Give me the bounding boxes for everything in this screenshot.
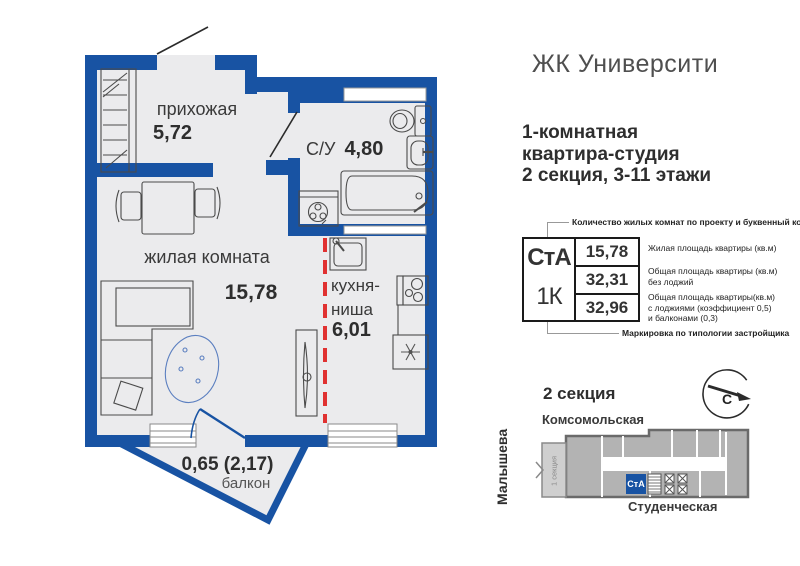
section-title: 2 секция	[543, 384, 615, 404]
area-value-total: 32,96	[576, 293, 638, 320]
kitchen-area: 6,01	[332, 319, 371, 342]
section-1-label: 1 секция	[546, 447, 562, 495]
stairs-icon	[648, 474, 661, 494]
bathroom-area: 4,80	[344, 138, 383, 161]
page-title: ЖК Университи	[480, 50, 770, 79]
floor-plan-page: прихожая 5,72 С/У 4,80 жилая комната 15,…	[0, 0, 800, 566]
rooms-code: 1К	[524, 281, 574, 313]
vent-niche-top	[344, 88, 426, 101]
table-top-annotation: Количество жилых комнат по проекту и бук…	[572, 217, 800, 228]
window-right	[328, 424, 397, 447]
leader-top-h	[547, 222, 569, 223]
hallway-area: 5,72	[130, 122, 215, 145]
row-label-total: Общая площадь квартиры(кв.м) с лоджиями …	[648, 292, 793, 324]
living-room-area: 15,78	[206, 281, 296, 305]
unit-marker-label: СтА	[626, 474, 646, 494]
area-value-no-loggia: 32,31	[576, 265, 638, 293]
apartment-subtitle: 1-комнатная квартира-студия 2 секция, 3-…	[522, 122, 762, 187]
compass-north-label: С	[719, 391, 735, 407]
street-left-label: Малышева	[491, 423, 513, 511]
row-label-living: Жилая площадь квартиры (кв.м)	[648, 243, 776, 254]
balcony-area: 0,65 (2,17)	[165, 454, 290, 476]
bathroom-label-row: С/У 4,80	[306, 138, 383, 161]
balcony-door-threshold	[196, 435, 245, 447]
living-room-label: жилая комната	[127, 247, 287, 268]
window-left	[150, 424, 196, 447]
leader-bottom-h	[547, 333, 619, 334]
area-value-living: 15,78	[576, 239, 638, 265]
kitchen-label: кухня- ниша	[331, 274, 380, 322]
vent-niche-bottom	[344, 226, 426, 234]
table-bottom-annotation: Маркировка по типологии застройщика	[622, 328, 789, 339]
street-top-label: Комсомольская	[542, 412, 644, 427]
bathroom-label: С/У	[306, 139, 335, 160]
info-table: СтА 1К 15,78 32,31 32,96	[522, 237, 640, 322]
balcony-label: балкон	[186, 475, 306, 492]
entrance-door-swing	[157, 27, 208, 54]
street-bottom-label: Студенческая	[628, 499, 717, 514]
hallway-label: прихожая	[132, 99, 262, 120]
leader-top-v	[547, 223, 548, 237]
row-label-no-loggia: Общая площадь квартиры (кв.м) без лоджий	[648, 266, 788, 287]
type-code: СтА	[524, 242, 574, 274]
